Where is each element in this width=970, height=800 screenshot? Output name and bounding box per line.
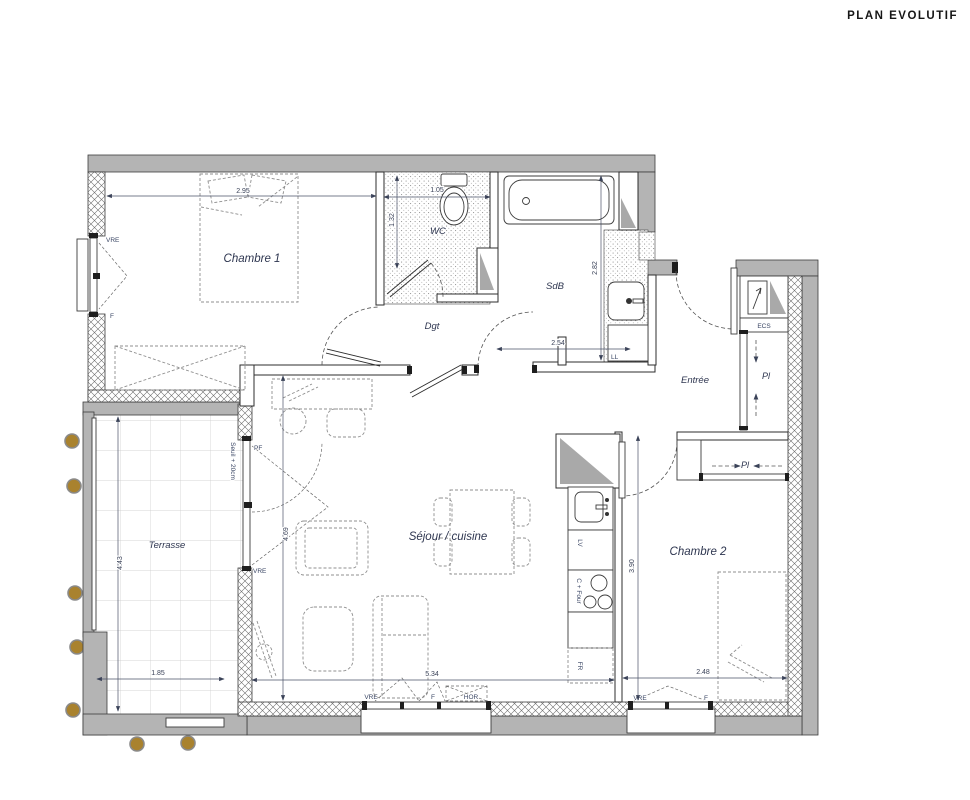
- kitchen-counter: LV C + Four FR: [568, 487, 613, 683]
- terrasse-rail: [92, 418, 96, 630]
- pl-entree-label: Pl: [762, 371, 771, 381]
- label-dgt: Dgt: [425, 321, 440, 332]
- tree-icon: [130, 737, 144, 751]
- duct-shaft: [639, 232, 655, 260]
- wall-sdb-entree: [648, 275, 656, 365]
- label-sdb: SdB: [546, 281, 565, 292]
- sofa: [373, 596, 428, 698]
- svg-text:1.05: 1.05: [430, 187, 444, 194]
- dishwasher-label: LV: [576, 539, 583, 547]
- sejour-window-sill: [361, 709, 491, 733]
- window-label: F: [431, 694, 435, 701]
- window-handle: [244, 502, 252, 508]
- window-label: PF: [254, 445, 262, 452]
- wall-sejour-west-upper: [238, 404, 252, 440]
- fridge-box: [568, 648, 613, 683]
- wall-topright-column: [637, 172, 655, 232]
- plan-title: PLAN EVOLUTIF: [847, 10, 958, 22]
- wall-wc-south: [437, 294, 498, 302]
- window-label: VRE: [633, 695, 647, 702]
- svg-text:2.95: 2.95: [236, 188, 250, 195]
- svg-text:3.90: 3.90: [629, 559, 636, 573]
- wall-bottom-2: [489, 702, 629, 716]
- window-label: HOR: [464, 694, 479, 701]
- svg-text:2.82: 2.82: [592, 261, 599, 275]
- wall-left-lower: [88, 314, 105, 402]
- wall-entree-chambre2: [677, 432, 788, 440]
- svg-text:1.85: 1.85: [151, 670, 165, 677]
- wall-bottom-outer: [247, 716, 802, 735]
- floor-plan-drawing: PLAN EVOLUTIF: [0, 0, 970, 800]
- sejour-pf-arc: [252, 442, 322, 512]
- label-terrasse: Terrasse: [149, 540, 186, 551]
- fridge-label: FR: [576, 662, 583, 671]
- wall-entry-right: [736, 260, 818, 276]
- pl-chambre2-side: [677, 440, 701, 480]
- bathtub-drain: [523, 198, 530, 205]
- label-entree: Entrée: [681, 375, 709, 386]
- wall-right: [788, 276, 802, 716]
- bathtub-inner: [509, 180, 609, 220]
- sink-faucet: [626, 298, 632, 304]
- svg-text:2.54: 2.54: [551, 340, 565, 347]
- pl-entree-front: [740, 332, 747, 430]
- pl-chambre2-front: [701, 474, 788, 480]
- counter-box: [568, 612, 613, 648]
- tree-icon: [66, 703, 80, 717]
- desk: [272, 379, 372, 409]
- wall-right-outer: [802, 276, 818, 735]
- bed-chambre2: [718, 572, 786, 700]
- tree-icon: [181, 736, 195, 750]
- sejour-pf-swing: [252, 446, 328, 565]
- window-label: F: [110, 313, 114, 320]
- ottoman: [303, 607, 353, 671]
- washing-machine-label: LL: [611, 354, 619, 361]
- tree-icon: [70, 640, 84, 654]
- seuil-note: Seuil + 20cm: [229, 442, 236, 480]
- tree-icon: [68, 586, 82, 600]
- svg-text:4.43: 4.43: [117, 556, 124, 570]
- wall-chambre1-sejour: [248, 365, 410, 375]
- tree-icon: [65, 434, 79, 448]
- pillow: [248, 175, 286, 203]
- window-label: VRE: [364, 694, 378, 701]
- wall-sejour-west-lower: [238, 568, 252, 714]
- window-label: VRE: [253, 568, 267, 575]
- label-wc: WC: [430, 226, 446, 237]
- label-chambre1: Chambre 1: [224, 253, 281, 265]
- chambre1-window-sill: [77, 239, 88, 311]
- chambre2-door-arc: [622, 441, 677, 496]
- pl-chambre2-label: Pl: [741, 460, 750, 470]
- toilet-tank: [441, 174, 467, 186]
- dining-chair: [512, 538, 530, 566]
- wall-chambre1-wc: [376, 172, 384, 305]
- wall-bottom-1: [238, 702, 365, 716]
- entrance-door-arc: [676, 271, 734, 329]
- sdb-door-arc: [478, 312, 533, 367]
- svg-text:4.69: 4.69: [283, 527, 290, 541]
- chambre1-window-swing: [99, 243, 127, 309]
- ecs-label: ECS: [757, 323, 771, 330]
- label-chambre2: Chambre 2: [670, 546, 727, 558]
- wall-corner-post: [240, 365, 254, 406]
- wall-sdb-south: [533, 362, 655, 372]
- bathtub: [504, 176, 614, 224]
- chambre2-door-leaf: [619, 442, 625, 498]
- dining-chair: [434, 498, 452, 526]
- wall-left-upper: [88, 172, 105, 236]
- floor-plan-page: PLAN EVOLUTIF: [0, 0, 970, 800]
- stool: [280, 408, 306, 434]
- tree-icon: [67, 479, 81, 493]
- cooktop-label: C + Four: [575, 578, 582, 604]
- wall-chambre1-terrasse: [88, 390, 247, 402]
- chambre2-window-sill: [627, 709, 715, 733]
- chambre2-window: [631, 702, 711, 709]
- terrasse-divider-wall: [83, 402, 247, 415]
- cooktop-box: [568, 570, 613, 612]
- window-label: VRE: [106, 237, 120, 244]
- svg-text:2.48: 2.48: [696, 669, 710, 676]
- dining-chair: [512, 498, 530, 526]
- svg-text:5.34: 5.34: [425, 671, 439, 678]
- dishwasher-box: [568, 530, 613, 570]
- window-label: F: [704, 695, 708, 702]
- wall-top: [88, 155, 655, 172]
- terrasse-step: [166, 718, 224, 727]
- chambre1-door-arc: [322, 307, 380, 365]
- window-handle: [93, 273, 100, 279]
- svg-text:1.32: 1.32: [389, 213, 396, 227]
- interior-walls: [240, 172, 788, 702]
- desk-chair: [327, 409, 365, 437]
- label-sejour: Séjour / cuisine: [409, 531, 488, 543]
- sejour-window: [365, 702, 489, 709]
- entrance-door-leaf: [731, 268, 737, 334]
